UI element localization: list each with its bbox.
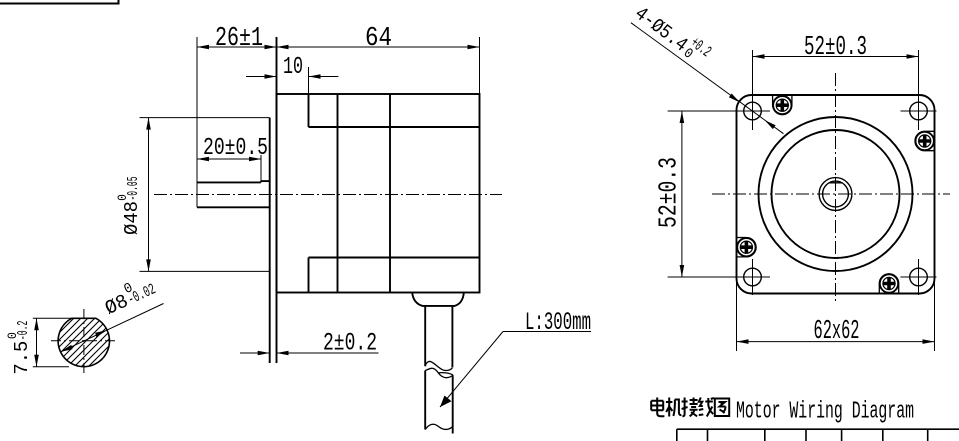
svg-text:7.5: 7.5 [11, 341, 33, 375]
svg-text:52±0.3: 52±0.3 [804, 32, 867, 62]
svg-text:Ø48: Ø48 [121, 201, 143, 235]
svg-text:Motor Wiring Diagram: Motor Wiring Diagram [736, 399, 914, 426]
svg-text:26±1: 26±1 [215, 24, 263, 54]
svg-text:L:300mm: L:300mm [525, 308, 591, 337]
svg-text:10: 10 [283, 54, 303, 81]
svg-text:-0.05: -0.05 [125, 177, 142, 201]
svg-text:20±0.5: 20±0.5 [203, 135, 268, 162]
svg-text:62x62: 62x62 [814, 317, 860, 347]
svg-text:-0.2: -0.2 [15, 321, 32, 341]
svg-text:2±0.2: 2±0.2 [323, 329, 377, 358]
svg-text:64: 64 [365, 24, 392, 54]
svg-text:52±0.3: 52±0.3 [655, 157, 684, 228]
